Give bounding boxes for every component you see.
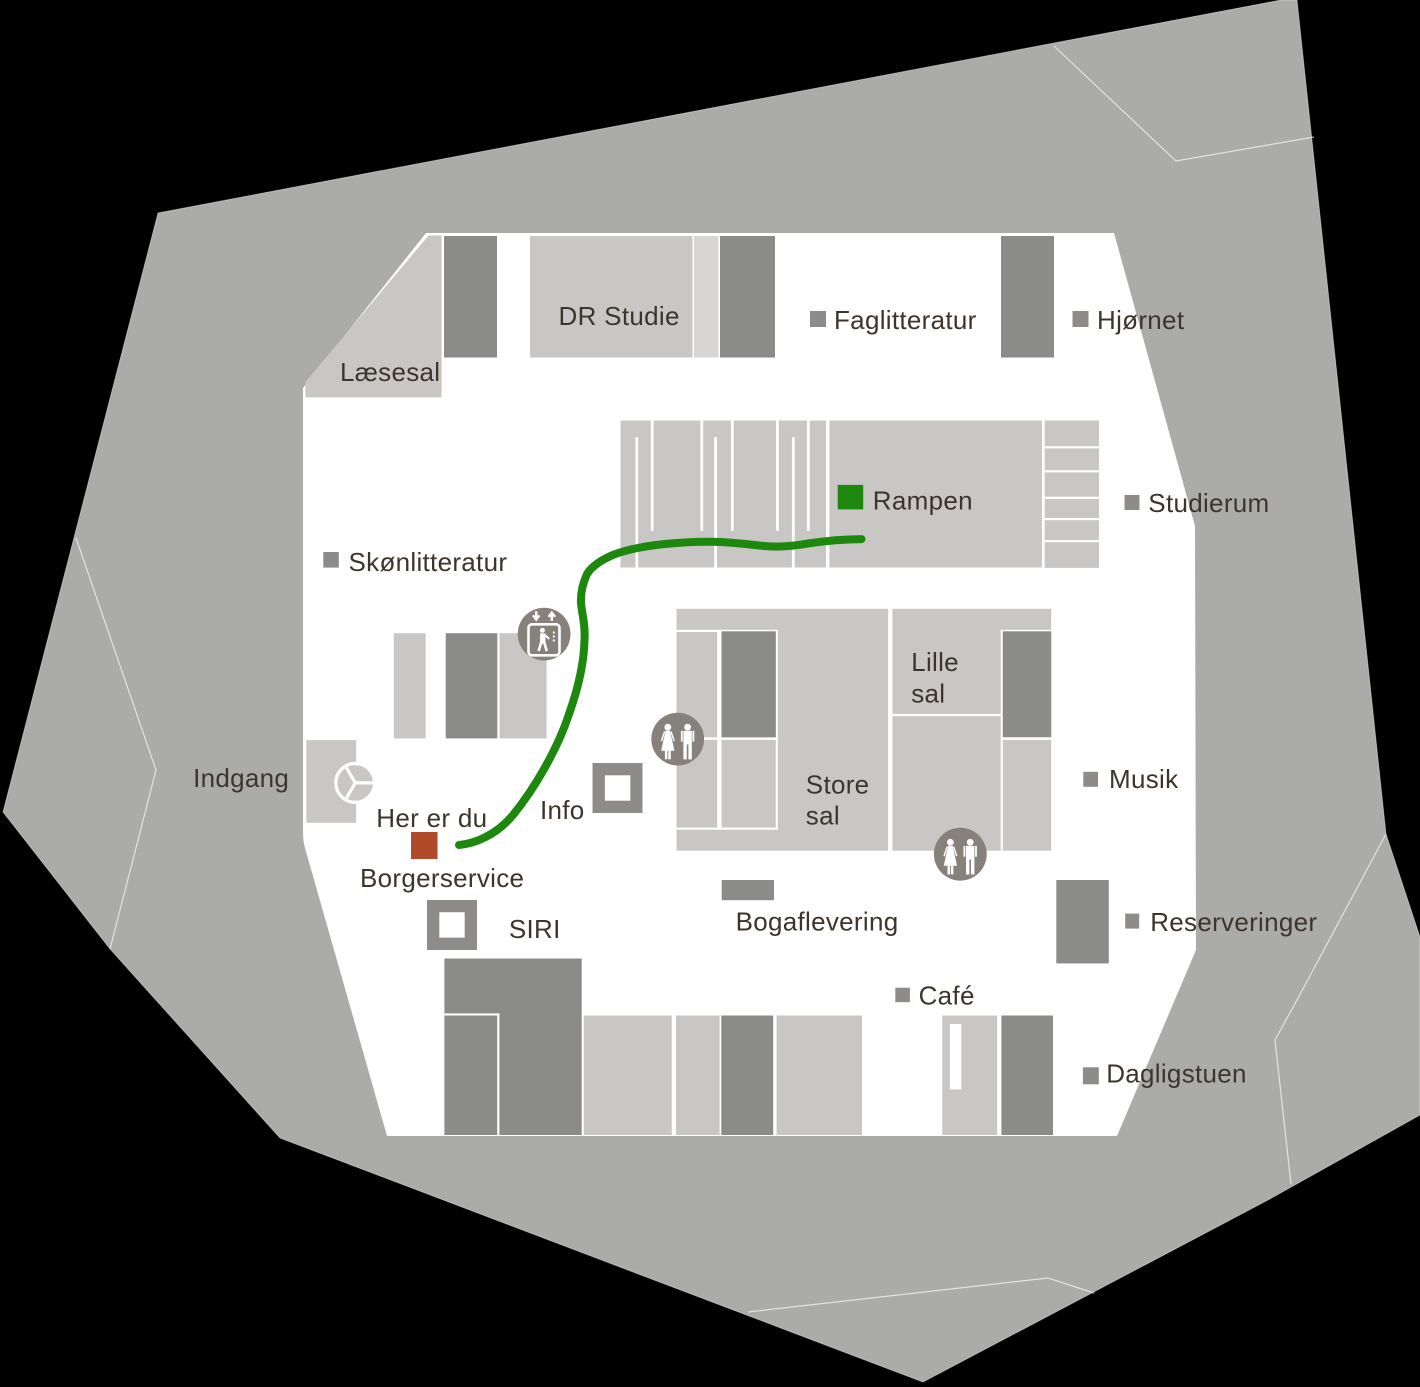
svg-text:Studierum: Studierum	[1148, 488, 1269, 518]
svg-text:Info: Info	[540, 795, 585, 825]
svg-text:sal: sal	[806, 801, 840, 831]
svg-text:SIRI: SIRI	[509, 914, 561, 944]
svg-text:Læsesal: Læsesal	[340, 357, 440, 387]
svg-text:Skønlitteratur: Skønlitteratur	[349, 547, 508, 577]
svg-text:Café: Café	[919, 980, 975, 1010]
svg-text:Dagligstuen: Dagligstuen	[1106, 1059, 1247, 1089]
svg-text:Rampen: Rampen	[873, 486, 973, 516]
svg-text:Borgerservice: Borgerservice	[360, 863, 524, 893]
svg-text:Indgang: Indgang	[193, 763, 289, 793]
svg-text:Musik: Musik	[1109, 764, 1179, 794]
svg-text:DR Studie: DR Studie	[559, 301, 680, 331]
svg-text:Faglitteratur: Faglitteratur	[834, 305, 977, 335]
svg-text:Bogaflevering: Bogaflevering	[736, 907, 899, 937]
svg-text:Her er du: Her er du	[376, 803, 487, 833]
svg-text:Hjørnet: Hjørnet	[1097, 305, 1185, 335]
svg-text:Store: Store	[806, 770, 870, 800]
svg-text:sal: sal	[911, 679, 945, 709]
svg-text:Reserveringer: Reserveringer	[1150, 907, 1317, 937]
svg-text:Lille: Lille	[911, 647, 959, 677]
